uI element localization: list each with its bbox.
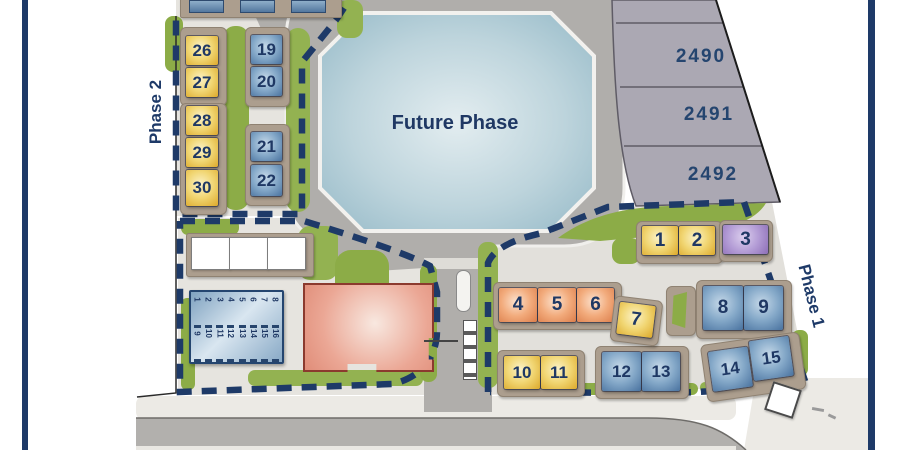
garage-door-tick [194,359,201,362]
garage-unit-number: 16 [271,329,280,338]
island-green [672,292,687,328]
garage-unit-number: 15 [260,329,269,338]
garage-door-tick [250,325,257,328]
right-frame-line [868,0,875,450]
lot-26[interactable]: 26 [186,36,218,65]
lot-20[interactable]: 20 [251,67,282,96]
top-partial-unit [189,0,224,13]
garage-door-tick [216,325,223,328]
garage-unit-number: 8 [271,297,280,301]
lot-27[interactable]: 27 [186,68,218,97]
bottom-street [136,418,746,450]
garage-building [229,237,268,270]
lot-11[interactable]: 11 [541,356,577,389]
garage-row-2: 9 10 11 12 13 14 15 16 [192,329,281,362]
bottom-street-edge [136,446,736,450]
lot-30[interactable]: 30 [186,170,218,206]
lot-13[interactable]: 13 [642,352,680,391]
lot-15[interactable]: 15 [749,336,794,381]
top-partial-unit [291,0,326,13]
lot-19[interactable]: 19 [251,35,282,64]
phase2-label: Phase 2 [146,52,166,172]
clubhouse-building [303,283,434,372]
garage-unit-number: 13 [238,329,247,338]
lot-12[interactable]: 12 [602,352,641,391]
garage-row-1: 1 2 3 4 5 6 7 8 [192,295,281,328]
garage-unit-number: 10 [204,329,213,338]
garage-unit-number: 6 [249,297,258,301]
garage-door-tick [205,359,212,362]
garage-unit-building: 1 2 3 4 5 6 7 8 9 10 11 12 13 14 15 16 [189,290,284,364]
site-plan-map: 26 27 28 29 30 19 20 21 22 1 2 3 4 5 6 7… [0,0,900,450]
garage-door-tick [205,325,212,328]
lot-6[interactable]: 6 [577,288,614,322]
lot-22[interactable]: 22 [251,165,282,196]
lot-7-group: 7 [609,293,664,347]
lot-2[interactable]: 2 [679,226,715,255]
garage-door-tick [250,359,257,362]
future-phase-label: Future Phase [330,112,580,135]
garage-unit-number: 9 [193,331,202,335]
lot-3[interactable]: 3 [723,225,768,254]
garage-door-tick [227,359,234,362]
garage-unit-number: 7 [260,297,269,301]
lot-10[interactable]: 10 [504,356,540,389]
lot-7[interactable]: 7 [616,302,656,338]
garage-unit-number: 2 [204,297,213,301]
top-partial-unit [240,0,275,13]
garage-door-tick [261,325,268,328]
garage-unit-number: 1 [193,297,202,301]
gate-arm [424,340,458,342]
median-island [456,270,471,312]
garage-unit-number: 14 [249,329,258,338]
garage-door-tick [272,325,279,328]
lot-1[interactable]: 1 [642,226,678,255]
lot-21[interactable]: 21 [251,132,282,161]
lot-28[interactable]: 28 [186,106,218,135]
garage-unit-number: 12 [226,329,235,338]
lot-29[interactable]: 29 [186,138,218,167]
garage-unit-number: 11 [215,329,224,337]
garage-building [191,237,230,270]
garage-door-tick [272,359,279,362]
lot-14[interactable]: 14 [708,347,753,392]
garage-door-tick [239,359,246,362]
lot-5[interactable]: 5 [538,288,576,322]
parcel-label-2491: 2491 [666,104,752,126]
parcel-label-2490: 2490 [658,46,744,68]
left-frame-line [22,0,28,450]
garage-door-tick [216,359,223,362]
garage-door-tick [239,325,246,328]
lot-4[interactable]: 4 [499,288,537,322]
garage-door-tick [194,325,201,328]
lot-9[interactable]: 9 [744,286,783,330]
garage-building [267,237,306,270]
garage-door-tick [227,325,234,328]
lot-8[interactable]: 8 [703,286,743,330]
garage-door-tick [261,359,268,362]
garage-unit-number: 3 [215,297,224,301]
garage-unit-number: 4 [226,297,235,301]
garage-unit-number: 5 [238,297,247,301]
parcel-label-2492: 2492 [670,164,756,186]
entry-gate-kiosk [463,320,477,380]
